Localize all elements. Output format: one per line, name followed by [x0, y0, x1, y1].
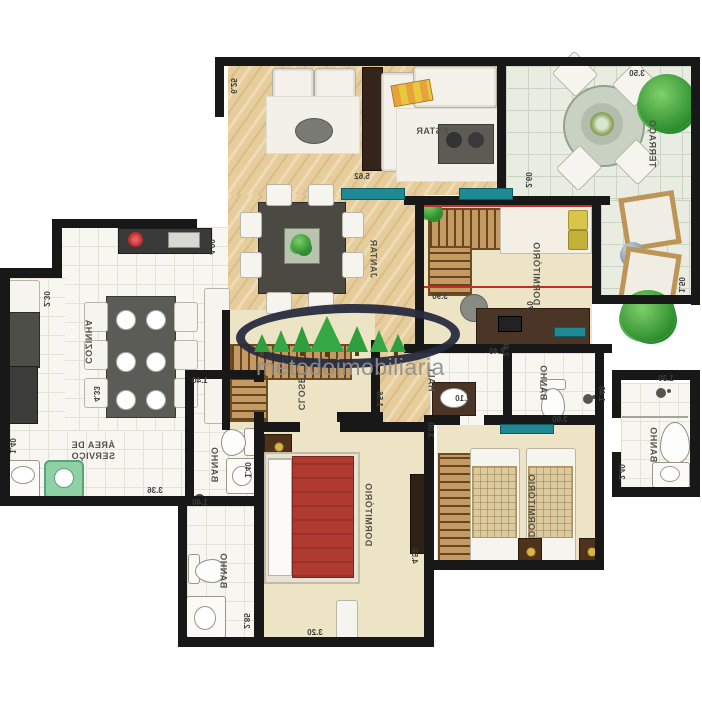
- tv-panel: [362, 67, 383, 171]
- wall: [254, 412, 264, 647]
- sink-bowl: [660, 466, 680, 482]
- bed-cover-red: [292, 456, 354, 578]
- wall: [497, 57, 506, 190]
- wall: [691, 57, 700, 305]
- tub-bowl: [11, 466, 35, 484]
- room-label-estar: ESTAR: [402, 126, 462, 137]
- plate: [116, 352, 136, 372]
- wall: [0, 278, 10, 506]
- dim-estar-w: 5.62: [345, 172, 379, 182]
- dim-banho-serv-w: 1.40: [183, 376, 217, 386]
- tree-icon: [370, 330, 388, 352]
- plate: [146, 310, 166, 330]
- dim-twin-w: 3.60: [543, 415, 577, 425]
- coffee-table: [295, 118, 333, 144]
- plate: [590, 112, 614, 136]
- wall: [0, 496, 185, 506]
- dim-banho-suite-w: 1.30: [649, 374, 683, 384]
- dim-banho-serv-h: 1.40: [242, 453, 252, 487]
- dim-terraco-side: 1.50: [676, 268, 686, 302]
- kitchen-chair: [174, 302, 198, 332]
- room-label-dormitorio-casal: DORMITÓRIO: [363, 475, 374, 555]
- stove-burner: [128, 232, 143, 247]
- wall: [424, 425, 434, 640]
- dim-dorm-suite-w: 3.90: [423, 292, 457, 302]
- decor-bowl: [468, 132, 484, 148]
- room-label-banho-social: BANHO: [218, 531, 229, 611]
- dim-servico-w: 3.36: [138, 486, 172, 496]
- dining-chair: [240, 212, 262, 238]
- tree-icon: [346, 326, 368, 352]
- pillow: [568, 210, 588, 230]
- dim-terraco-h: 2.60: [523, 163, 533, 197]
- room-label-banho-servico: BANHO: [209, 425, 220, 505]
- washer-door: [54, 468, 74, 488]
- room-label-banho-suite: BANHO: [648, 405, 659, 485]
- dim-hall-w: 2.10: [446, 394, 480, 404]
- dim-hall-side: 1.56: [374, 382, 384, 416]
- pillows: [268, 458, 292, 576]
- wall: [52, 219, 197, 228]
- room-label-area-servico: ÁREA DE SERVIÇO: [64, 440, 122, 462]
- wall: [222, 310, 230, 430]
- dim-terraco-w: 3.50: [620, 69, 654, 79]
- plate: [146, 390, 166, 410]
- wall: [690, 370, 700, 497]
- wall: [340, 422, 434, 432]
- kitchen-chair: [174, 340, 198, 370]
- dining-chair: [308, 184, 334, 206]
- sink-bowl: [194, 606, 216, 630]
- dim-banho-suite-h: 2.40: [616, 455, 626, 489]
- wall: [612, 370, 621, 418]
- wall: [254, 422, 300, 432]
- curtain-rail: [424, 205, 592, 207]
- dining-chair: [342, 252, 364, 278]
- room-label-cozinha: COZINHA: [83, 302, 94, 382]
- plate: [116, 310, 136, 330]
- room-label-banho-meio: BANHO: [538, 343, 549, 423]
- curtain-rail: [424, 286, 592, 288]
- window-sill: [341, 188, 405, 200]
- wall: [428, 560, 604, 570]
- plate: [116, 390, 136, 410]
- wardrobe: [438, 453, 472, 565]
- dim-cozinha-len: 4.33: [91, 377, 101, 411]
- dim-estar-len: 6.25: [228, 69, 238, 103]
- dim-cozinha-side: 2.30: [41, 282, 51, 316]
- dim-banho-meio-h: 2.40: [500, 332, 510, 366]
- bed-blanket: [472, 466, 517, 538]
- dim-banho-meio-w: 1.40: [596, 377, 606, 411]
- tree-icon: [272, 330, 290, 352]
- tree-icon: [310, 316, 344, 352]
- headboard-shelf: [500, 424, 554, 434]
- wall: [592, 196, 601, 304]
- centerpiece-plant: [291, 234, 311, 254]
- shower-head: [583, 394, 593, 404]
- watermark-brand: metodoimobiliaria: [256, 354, 445, 381]
- wall: [178, 637, 434, 647]
- dim-servico-side: 1.40: [7, 429, 17, 463]
- dim-dorm-suite-h: 2.70: [524, 292, 534, 326]
- wall: [185, 370, 194, 506]
- tree-icon: [292, 326, 312, 352]
- room-label-dormitorio-twin: DORMITÓRIO: [526, 466, 537, 546]
- toilet: [660, 422, 690, 464]
- dim-twin-h: 3.00: [425, 413, 435, 447]
- floor-plan: ESTAR JANTAR TERRAÇO COZINHA ÁREA DE SER…: [0, 0, 702, 708]
- monitor: [554, 327, 586, 337]
- sink-unit: [168, 232, 200, 248]
- room-label-terraco: TERRAÇO: [647, 104, 658, 184]
- dining-chair: [342, 212, 364, 238]
- wardrobe: [428, 246, 472, 296]
- laptop: [498, 316, 522, 332]
- tree-icon: [390, 334, 406, 352]
- dining-chair: [240, 252, 262, 278]
- dining-chair: [266, 184, 292, 206]
- dim-banho-soc-w: 1.40: [183, 498, 217, 508]
- wall: [178, 506, 187, 647]
- dim-casal-h: 4.50: [409, 539, 419, 573]
- plate: [146, 352, 166, 372]
- dim-cozinha-w: 4.00: [206, 230, 216, 264]
- wall: [215, 57, 224, 117]
- cabinet: [8, 280, 40, 314]
- dim-banho-soc-h: 2.85: [241, 604, 251, 638]
- dim-casal-w: 3.20: [298, 628, 332, 638]
- tree-icon: [254, 334, 270, 352]
- wall: [215, 57, 700, 66]
- pillow: [568, 230, 588, 250]
- window-sill: [459, 188, 513, 200]
- shower-head: [656, 388, 666, 398]
- dresser: [336, 600, 358, 640]
- room-label-jantar: JANTAR: [368, 219, 379, 299]
